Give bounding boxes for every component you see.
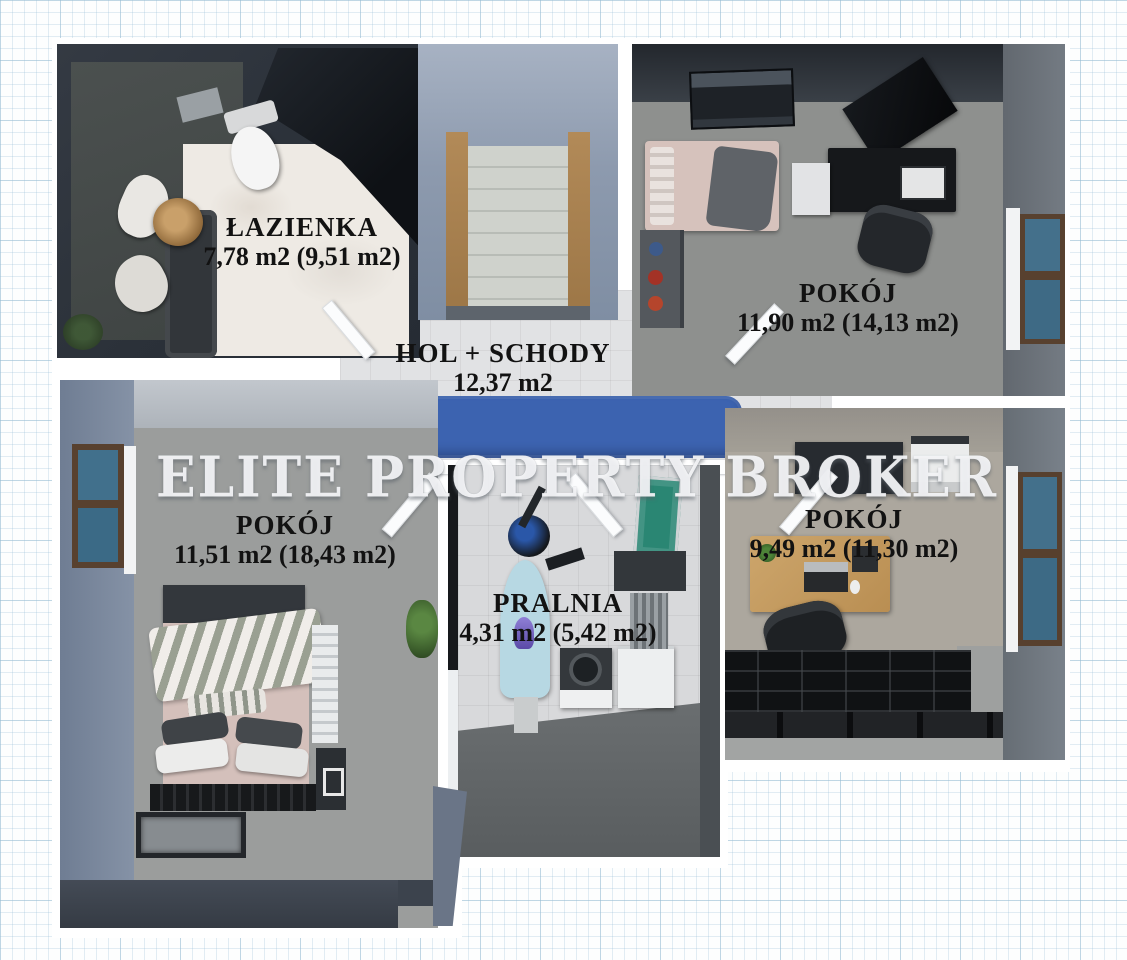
vacuum-body: [508, 515, 550, 557]
room-name: POKÓJ: [695, 278, 1001, 308]
bed-end-bench: [150, 784, 316, 811]
room-area: 7,78 m2 (9,51 m2): [150, 242, 454, 272]
window-glass: [1023, 477, 1057, 549]
room-pokoj-gorny: [632, 44, 1065, 396]
window: [72, 444, 124, 568]
radiator: [312, 625, 338, 743]
label-pokoj-gorny: POKÓJ 11,90 m2 (14,13 m2): [695, 278, 1001, 338]
desk-laptop: [804, 562, 848, 592]
label-pokoj-prawy: POKÓJ 9,49 m2 (11,30 m2): [702, 504, 1006, 564]
window-glass: [78, 508, 118, 562]
label-pokoj-lewy: POKÓJ 11,51 m2 (18,43 m2): [130, 510, 440, 570]
black-bed-frame: [725, 712, 1003, 738]
window: [1018, 472, 1062, 646]
stair-landing: [446, 306, 590, 320]
stair-steps: [468, 146, 568, 310]
room-name: ŁAZIENKA: [150, 212, 454, 242]
washing-machine: [560, 648, 612, 708]
window: [1020, 214, 1065, 344]
room-name: HOL + SCHODY: [348, 338, 658, 368]
bath-plant: [63, 314, 103, 350]
red-mug: [648, 296, 663, 311]
room-area: 11,51 m2 (18,43 m2): [130, 540, 440, 570]
bottom-wall-step: [398, 880, 438, 906]
bed-pillow: [650, 147, 674, 225]
window-glass: [1025, 280, 1060, 339]
watermark-text: ELITE PROPERTY BROKER: [156, 445, 998, 511]
room-area: 11,90 m2 (14,13 m2): [695, 308, 1001, 338]
label-pralnia: PRALNIA 4,31 m2 (5,42 m2): [415, 588, 701, 648]
office-chair: [854, 200, 937, 277]
staircase: [418, 44, 618, 320]
red-mug: [648, 270, 663, 285]
window-sill: [1006, 208, 1020, 350]
side-table: [316, 748, 346, 810]
window-sill: [1006, 466, 1018, 652]
floor-plan-canvas: ŁAZIENKA 7,78 m2 (9,51 m2) HOL + SCHODY …: [0, 0, 1127, 960]
label-lazienka: ŁAZIENKA 7,78 m2 (9,51 m2): [150, 212, 454, 272]
picture-frame: [689, 68, 795, 130]
floor-picture-frame: [136, 812, 246, 858]
label-hol: HOL + SCHODY 12,37 m2: [348, 338, 658, 398]
bottom-wall: [60, 880, 398, 928]
washer-drum: [569, 653, 602, 686]
ironing-board-leg: [514, 697, 538, 733]
room-name: PRALNIA: [415, 588, 701, 618]
laundry-cabinet: [618, 646, 674, 708]
laptop: [900, 166, 946, 200]
phone-frame: [323, 768, 344, 796]
room-pralnia: [448, 465, 720, 857]
black-bed: [725, 650, 971, 712]
room-area: 4,31 m2 (5,42 m2): [415, 618, 701, 648]
window-glass: [1025, 219, 1060, 271]
window-glass: [78, 450, 118, 500]
window-glass: [1023, 558, 1057, 640]
room-area: 12,37 m2: [348, 368, 658, 398]
stair-rail-right: [568, 132, 590, 310]
bed-blanket: [705, 145, 778, 232]
room-area: 9,49 m2 (11,30 m2): [702, 534, 1006, 564]
white-cabinet: [792, 163, 830, 215]
desk-mouse: [850, 580, 860, 594]
blue-cup: [649, 242, 663, 256]
room-lazienka: [57, 44, 420, 358]
room-name: POKÓJ: [130, 510, 440, 540]
wall-shelf: [614, 551, 686, 591]
